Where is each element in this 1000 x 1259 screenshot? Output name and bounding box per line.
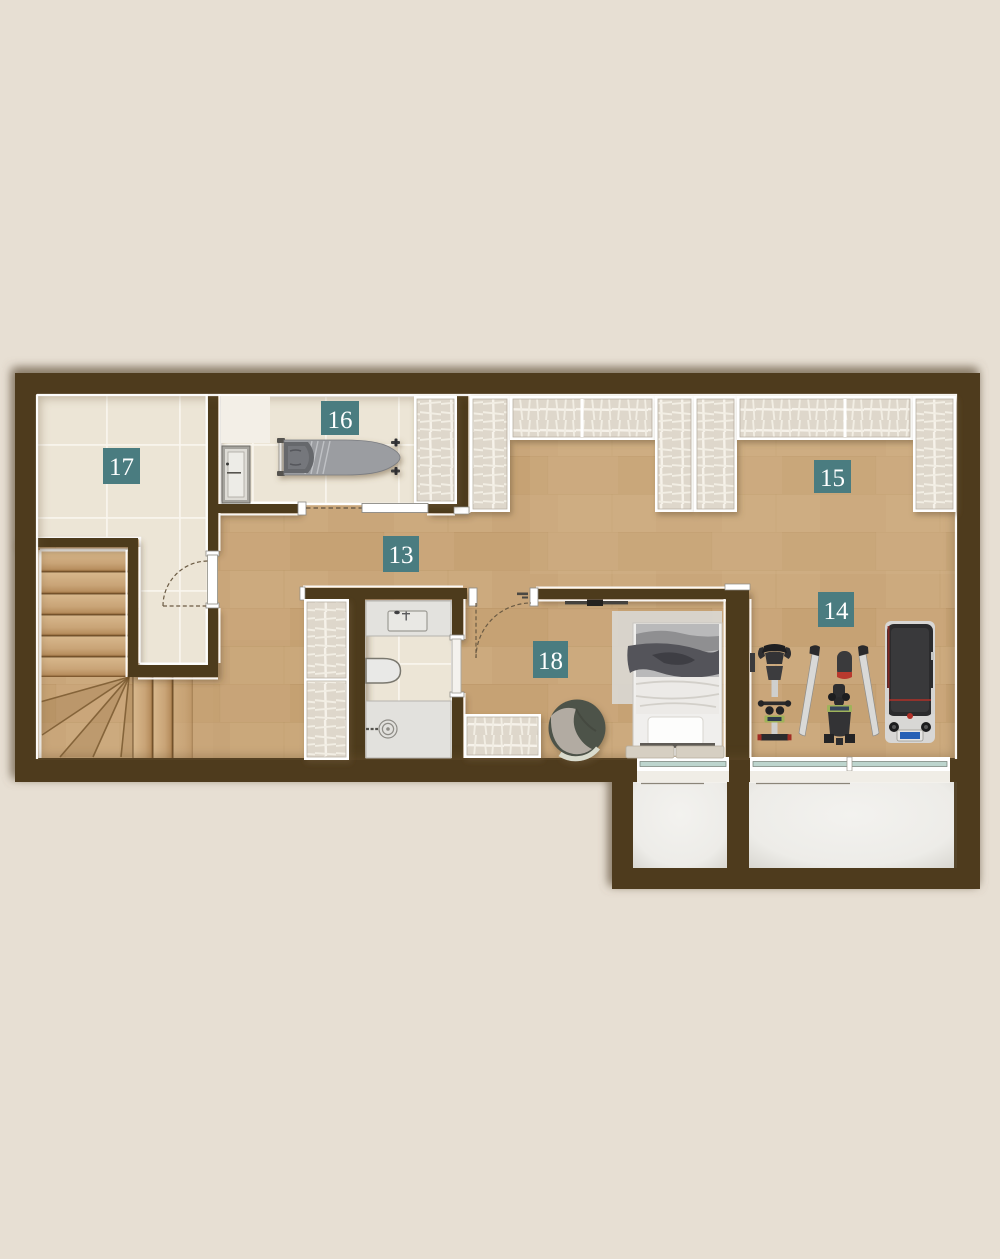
svg-text:18: 18	[538, 648, 563, 675]
svg-text:17: 17	[109, 454, 134, 481]
svg-text:14: 14	[824, 598, 850, 625]
svg-text:15: 15	[820, 465, 845, 492]
svg-text:13: 13	[389, 542, 414, 569]
svg-text:16: 16	[328, 407, 353, 434]
